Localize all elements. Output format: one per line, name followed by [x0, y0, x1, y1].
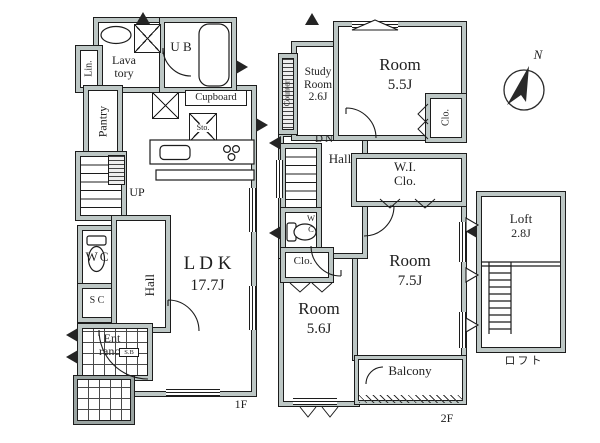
- counter-label: Counter: [284, 67, 293, 119]
- closet-right-label: Clo.: [441, 101, 452, 135]
- wc-1f-label: WC: [80, 250, 116, 264]
- floor-plan-image: Sto.: [0, 0, 600, 443]
- window-room56-bottom: [293, 398, 337, 405]
- wc-2f-label: WC: [304, 213, 318, 235]
- balcony-label: Balcony: [374, 364, 446, 378]
- compass-north-label: N: [528, 48, 548, 62]
- cupboard-label: Cupboard: [187, 92, 245, 104]
- compass-icon: [504, 66, 544, 110]
- window-room75-right-lower: [459, 312, 466, 348]
- loft-label: Loft2.8J: [495, 212, 547, 241]
- window-room55-top: [352, 21, 398, 28]
- storage-box-icon: Sto.: [189, 113, 217, 142]
- dn-label: DN: [310, 133, 340, 145]
- window-stairwell-left: [276, 160, 283, 198]
- floor2-label: 2F: [432, 412, 462, 425]
- shoe-closet-label: S C: [80, 295, 114, 306]
- hall-2f-label: Hall: [320, 152, 360, 166]
- stair-side-shelf: [108, 155, 125, 185]
- window-ldk-right-upper: [249, 188, 256, 232]
- hall-1f-label: Hall: [143, 260, 157, 310]
- balcony-railing: [359, 395, 463, 403]
- up-label: UP: [122, 186, 152, 199]
- unit-bath-label: U B: [162, 40, 200, 54]
- lavatory-label: Lavatory: [98, 54, 150, 80]
- ldk-label: L D K17.7J: [160, 254, 255, 296]
- pantry-label: Pantry: [96, 92, 109, 152]
- room-unit-bath: [160, 18, 236, 92]
- closet-left-label: Clo.: [285, 255, 321, 267]
- study-room-label: StudyRoom2.6J: [294, 66, 342, 104]
- storage-label: Sto.: [196, 124, 211, 132]
- floor1-label: 1F: [226, 398, 256, 411]
- window-room75-right-upper: [459, 222, 466, 262]
- room56-label: Room5.6J: [283, 300, 355, 337]
- room75-label: Room7.5J: [368, 252, 452, 289]
- linen-label: Lin.: [84, 49, 95, 89]
- room55-label: Room5.5J: [358, 56, 442, 93]
- refrigerator-space-icon: [152, 92, 179, 119]
- washing-machine-icon: [134, 24, 161, 53]
- wic-label: W.I.Clo.: [375, 160, 435, 189]
- loft-caption: ロフト: [496, 355, 552, 367]
- shoe-box-label: S.B: [119, 348, 139, 357]
- porch: [74, 376, 134, 424]
- window-ldk-bottom: [166, 389, 220, 396]
